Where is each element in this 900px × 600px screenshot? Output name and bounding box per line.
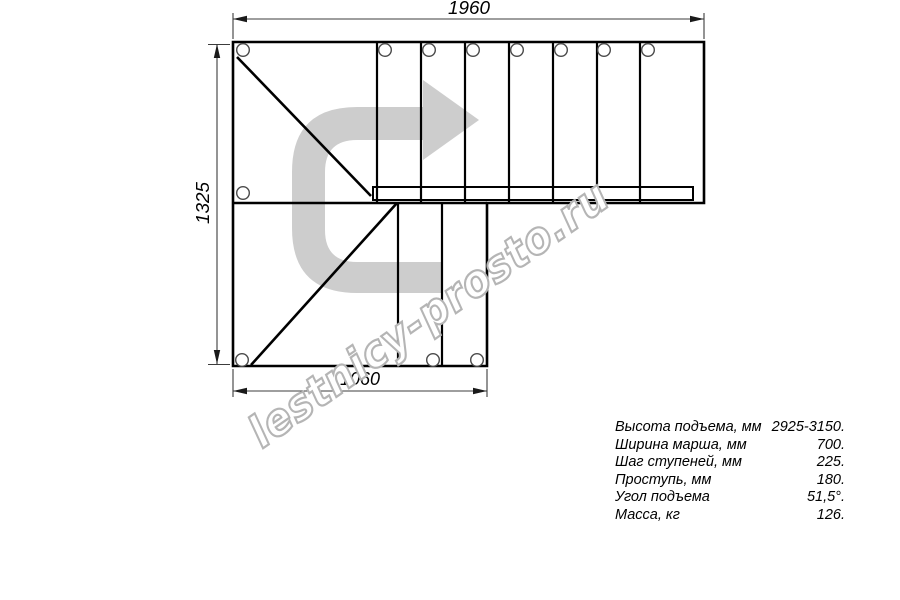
- dim-arrow-left: [233, 388, 247, 394]
- mounting-hole: [642, 44, 655, 57]
- dim-arrow-up: [214, 44, 220, 58]
- spec-row: Масса, кг 126.: [615, 507, 845, 525]
- mounting-hole: [427, 354, 440, 367]
- mounting-hole: [511, 44, 524, 57]
- dim-arrow-right: [473, 388, 487, 394]
- mounting-hole: [423, 44, 436, 57]
- spec-value: 180.: [817, 472, 845, 490]
- spec-row: Шаг ступеней, мм 225.: [615, 454, 845, 472]
- dimension-top: 1960: [233, 0, 704, 39]
- spec-label: Шаг ступеней, мм: [615, 454, 742, 472]
- mounting-hole: [379, 44, 392, 57]
- dim-arrow-down: [214, 350, 220, 364]
- spec-row: Угол подъема 51,5°.: [615, 489, 845, 507]
- spec-value: 126.: [817, 507, 845, 525]
- spec-label: Проступь, мм: [615, 472, 711, 490]
- dimension-left: 1325: [193, 44, 230, 365]
- mounting-hole: [237, 187, 250, 200]
- spec-value: 51,5°.: [807, 489, 845, 507]
- mounting-hole: [471, 354, 484, 367]
- spec-row: Высота подъема, мм 2925-3150.: [615, 419, 845, 437]
- dimension-left-value: 1325: [193, 181, 213, 224]
- mounting-hole: [237, 44, 250, 57]
- spec-value: 700.: [817, 437, 845, 455]
- mounting-hole: [598, 44, 611, 57]
- spec-value: 225.: [817, 454, 845, 472]
- staircase-plan-page: 1960 1325 1060 lestnicy-prosto.ru Высота…: [0, 0, 900, 600]
- dim-arrow-right: [690, 16, 704, 22]
- dimension-top-value: 1960: [448, 0, 490, 18]
- spec-row: Проступь, мм 180.: [615, 472, 845, 490]
- direction-arrow-head: [423, 80, 479, 160]
- specs-table: Высота подъема, мм 2925-3150. Ширина мар…: [615, 419, 845, 525]
- spec-row: Ширина марша, мм 700.: [615, 437, 845, 455]
- spec-label: Высота подъема, мм: [615, 419, 762, 437]
- spec-label: Ширина марша, мм: [615, 437, 747, 455]
- mounting-hole: [236, 354, 249, 367]
- spec-value: 2925-3150.: [772, 419, 845, 437]
- spec-label: Угол подъема: [615, 489, 710, 507]
- dim-arrow-left: [233, 16, 247, 22]
- mounting-hole: [555, 44, 568, 57]
- spec-label: Масса, кг: [615, 507, 680, 525]
- mounting-hole: [467, 44, 480, 57]
